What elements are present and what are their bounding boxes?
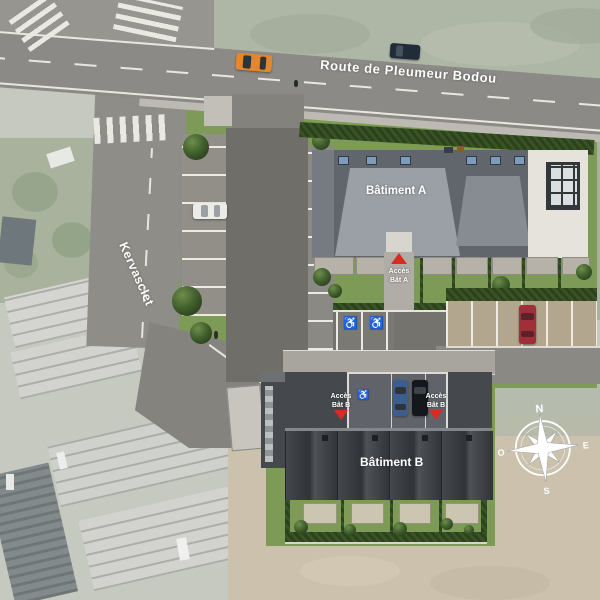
garden-hedge-south-b	[285, 532, 487, 542]
aerial-dark-roof	[0, 216, 36, 265]
car-white-parking	[193, 203, 227, 219]
access-b1-label: AccèsBât B	[327, 392, 355, 410]
access-b2-arrow-icon	[429, 410, 443, 420]
car-orange-road	[235, 53, 272, 73]
tree	[294, 520, 308, 534]
roof-skylight	[466, 156, 477, 165]
bike-shed	[226, 385, 265, 452]
building-b-roof-panel	[285, 431, 338, 500]
car-red-parking	[519, 305, 536, 344]
compass-east-label: E	[582, 440, 589, 450]
building-b-label: Bâtiment B	[360, 455, 423, 469]
aerial-trees	[12, 172, 58, 212]
roof-skylight	[514, 156, 525, 165]
crosswalk-kervasclet	[93, 114, 170, 144]
car-blue-carport	[393, 380, 408, 416]
field-mottle	[430, 566, 550, 600]
building-a-label: Bâtiment A	[366, 185, 426, 197]
terrace-row-a	[492, 257, 522, 275]
terrace-b	[399, 503, 431, 524]
chimney	[322, 435, 328, 441]
building-a-roof-face	[456, 176, 530, 246]
car-navy-road	[389, 43, 420, 60]
tree	[313, 268, 331, 286]
hedge-east-bays	[446, 288, 597, 301]
chimney	[372, 435, 378, 441]
terrace-row-a	[456, 257, 488, 275]
roof-vent	[444, 147, 453, 153]
chimney	[422, 435, 428, 441]
tree	[464, 525, 474, 535]
compass-south-label: S	[543, 486, 550, 496]
accessible-carport-icon: ♿	[357, 390, 369, 401]
roof-skylight	[366, 156, 377, 165]
roof-vent	[457, 146, 464, 152]
terrace-b	[303, 503, 337, 524]
tree	[172, 286, 202, 316]
compass-rose: N E S O	[492, 398, 596, 502]
utility-pad	[204, 96, 234, 126]
roof-skylight	[338, 156, 349, 165]
access-a-label: AccèsBât A	[384, 267, 414, 285]
tree	[328, 284, 342, 298]
compass-west-label: O	[497, 447, 505, 458]
aerial-trees	[52, 222, 92, 258]
access-b2-label: AccèsBât B	[422, 392, 450, 410]
accessible-parking-icon: ♿	[369, 316, 384, 330]
curb-line	[446, 346, 600, 348]
pedestrian	[294, 80, 298, 87]
roof-skylight	[400, 156, 411, 165]
tree	[576, 264, 592, 280]
tree	[190, 322, 212, 344]
site-plan-map: Kervasclet Route de Pleumeur Bodou	[0, 0, 600, 600]
carport-roof-east	[448, 372, 492, 430]
access-a-arrow-icon	[391, 253, 407, 264]
technical-tower	[261, 372, 285, 468]
pedestrian	[214, 331, 218, 339]
roof-skylight	[490, 156, 501, 165]
skylight-grid	[546, 162, 580, 210]
terrace-row-a	[420, 257, 452, 275]
chimney	[466, 435, 472, 441]
garden-divider	[420, 258, 423, 304]
access-b1-arrow-icon	[334, 410, 348, 420]
field-mottle	[300, 556, 400, 586]
compass-north-label: N	[535, 403, 544, 416]
parking-aisle	[226, 128, 308, 382]
curb-line	[333, 310, 455, 312]
aerial-van	[6, 474, 14, 490]
garden-fence-line	[285, 542, 487, 544]
building-a-roof-endwall	[312, 150, 334, 258]
tree	[344, 524, 356, 536]
field-mottle	[250, 14, 370, 54]
building-b-roof-panel	[441, 431, 493, 500]
terrace-b	[351, 503, 384, 524]
tree	[441, 518, 453, 530]
terrace-row-a	[526, 257, 558, 275]
tree	[393, 522, 407, 536]
accessible-parking-icon: ♿	[343, 316, 358, 330]
tree	[183, 134, 209, 160]
